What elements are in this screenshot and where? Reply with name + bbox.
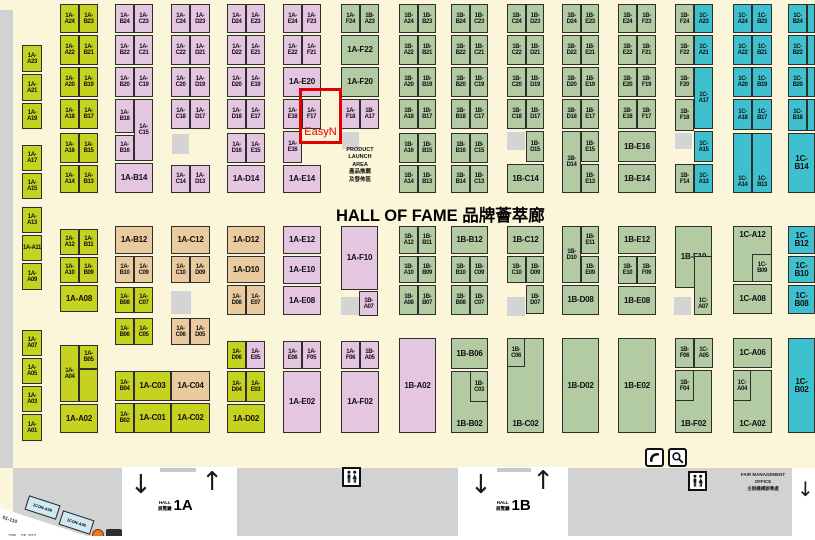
exhibition-floor-plan: 1A-A231A-A211A-A191A-A171A-A151A-A131A-A… xyxy=(0,0,815,540)
hall-1b-sublabel: HALL展覽廳 xyxy=(496,500,510,511)
hall-of-fame-title: HALL OF FAME 品牌薈萃廊 xyxy=(336,202,545,226)
booth-1B-F22[interactable]: 1B-F22 xyxy=(675,35,694,65)
booth-1B-D15[interactable]: 1B-D15 xyxy=(526,131,544,162)
booth-1C-B17[interactable]: 1C-B17 xyxy=(752,99,772,130)
booth-1C-B12[interactable]: 1C-B12 xyxy=(788,226,815,254)
booth-1B-B10[interactable]: 1B-B10 xyxy=(451,256,470,283)
booth-1B-E22[interactable]: 1B-E22 xyxy=(618,35,637,65)
booth-1B-E10[interactable]: 1B-E10 xyxy=(618,256,637,284)
booth-1B-C12[interactable]: 1B-C12 xyxy=(507,226,544,254)
booth-1B-D20[interactable]: 1B-D20 xyxy=(562,67,581,97)
booth-1A-C19[interactable]: 1A-C19 xyxy=(134,67,153,97)
booth-1A-C07[interactable]: 1A-C07 xyxy=(134,287,153,313)
booth-1A-D12[interactable]: 1A-D12 xyxy=(227,226,265,254)
booth-1C-B14[interactable]: 1C-B14 xyxy=(788,133,815,193)
pla-line: LAUNCH xyxy=(348,154,371,160)
booth-1B-A22[interactable]: 1B-A22 xyxy=(399,35,418,65)
booth-1A-A11[interactable]: 1A-A11 xyxy=(22,235,42,261)
magnifier-icon[interactable] xyxy=(668,448,687,467)
arrow-down-icon: ↓ xyxy=(470,472,492,498)
hall-1b-label: HALL展覽廳 1B xyxy=(496,497,531,514)
booth-1B-D23[interactable]: 1B-D23 xyxy=(526,4,544,33)
booth-filler[interactable] xyxy=(79,369,98,402)
booth-1A-B17[interactable]: 1A-B17 xyxy=(79,99,98,129)
booth-filler[interactable] xyxy=(807,35,815,65)
booth-1B-A12[interactable]: 1B-A12 xyxy=(399,226,418,254)
booth-1A-D14[interactable]: 1A-D14 xyxy=(227,165,265,193)
booth-1B-B08[interactable]: 1B-B08 xyxy=(451,285,470,315)
booth-1B-F19[interactable]: 1B-F19 xyxy=(637,67,656,97)
booth-1B-B14[interactable]: 1B-B14 xyxy=(451,165,470,193)
booth-1C-A18[interactable]: 1C-A18 xyxy=(733,99,752,130)
booth-1B-B07[interactable]: 1B-B07 xyxy=(418,285,436,315)
booth-1B-A08[interactable]: 1B-A08 xyxy=(399,285,418,315)
booth-1A-C23[interactable]: 1A-C23 xyxy=(134,4,153,33)
booth-1B-E02[interactable]: 1B-E02 xyxy=(618,338,656,433)
booth-1A-F22[interactable]: 1A-F22 xyxy=(341,35,379,65)
phone-icon[interactable] xyxy=(645,448,664,467)
booth-1B-C18[interactable]: 1B-C18 xyxy=(507,99,526,129)
booth-1B-C14[interactable]: 1B-C14 xyxy=(507,164,544,193)
booth-1A-C14[interactable]: 1A-C14 xyxy=(171,165,190,193)
booth-1A-B10[interactable]: 1A-B10 xyxy=(115,256,134,283)
booth-1A-B24[interactable]: 1A-B24 xyxy=(115,4,134,33)
booth-1B-E13[interactable]: 1B-E13 xyxy=(581,164,599,193)
booth-1A-A22[interactable]: 1A-A22 xyxy=(60,35,79,65)
booth-1B-D08[interactable]: 1B-D08 xyxy=(562,285,599,315)
booth-1A-B15[interactable]: 1A-B15 xyxy=(79,133,98,163)
booth-1A-B14[interactable]: 1A-B14 xyxy=(115,163,153,193)
booth-1A-F05[interactable]: 1A-F05 xyxy=(302,341,321,369)
hall-1a-label: HALL展覽廳 1A xyxy=(158,497,193,514)
booth-1A-D21[interactable]: 1A-D21 xyxy=(190,35,210,65)
booth-1A-F18[interactable]: 1A-F18 xyxy=(341,99,360,129)
booth-1A-A19[interactable]: 1A-A19 xyxy=(22,103,42,129)
booth-1B-C22[interactable]: 1B-C22 xyxy=(507,35,526,65)
booth-1C-B02[interactable]: 1C-B02 xyxy=(788,338,815,433)
booth-1B-F20[interactable]: 1B-F20 xyxy=(675,67,694,97)
booth-1A-C02[interactable]: 1A-C02 xyxy=(171,403,210,433)
booth-1B-B06[interactable]: 1B-B06 xyxy=(451,338,488,369)
easyn-label: EasyN xyxy=(302,126,339,138)
booth-1B-E14[interactable]: 1B-E14 xyxy=(618,164,656,193)
booth-1C-A15[interactable]: 1C-A15 xyxy=(694,131,713,162)
booth-1B-A02[interactable]: 1B-A02 xyxy=(399,338,436,433)
booth-1A-F24[interactable]: 1A-F24 xyxy=(341,4,360,33)
booth-1A-B12[interactable]: 1A-B12 xyxy=(115,226,153,254)
booth-1A-C10[interactable]: 1A-C10 xyxy=(171,256,190,283)
booth-1A-B16[interactable]: 1A-B16 xyxy=(115,135,134,161)
booth-1B-E18[interactable]: 1B-E18 xyxy=(618,99,637,129)
arrow-up-icon: ↑ xyxy=(532,468,554,494)
booth-1A-A18[interactable]: 1A-A18 xyxy=(60,99,79,129)
booth-1B-A16[interactable]: 1B-A16 xyxy=(399,133,418,163)
booth-1A-A09[interactable]: 1A-A09 xyxy=(22,263,42,290)
booth-1A-E17[interactable]: 1A-E17 xyxy=(246,99,265,129)
wall-left xyxy=(0,10,13,468)
booth-1B-C24[interactable]: 1B-C24 xyxy=(507,4,526,33)
booth-1A-E06[interactable]: 1A-E06 xyxy=(283,341,302,369)
booth-1A-E24[interactable]: 1A-E24 xyxy=(283,4,302,33)
entrance-hall-1a[interactable]: ↓ ↑ HALL展覽廳 1A xyxy=(122,467,237,536)
booth-1A-B05[interactable]: 1A-B05 xyxy=(79,345,98,369)
booth-1A-E08[interactable]: 1A-E08 xyxy=(283,286,321,315)
booth-1B-C09[interactable]: 1B-C09 xyxy=(470,256,488,283)
booth-1A-B20[interactable]: 1A-B20 xyxy=(115,67,134,97)
booth-1C-B21[interactable]: 1C-B21 xyxy=(752,35,772,65)
booth-1B-C21[interactable]: 1B-C21 xyxy=(470,35,488,65)
booth-1A-F21[interactable]: 1A-F21 xyxy=(302,35,321,65)
booth-1A-D09[interactable]: 1A-D09 xyxy=(190,256,210,283)
arrow-down-icon: ↓ xyxy=(797,477,814,501)
booth-1C-B24[interactable]: 1C-B24 xyxy=(788,4,807,33)
booth-1C-A13[interactable]: 1C-A13 xyxy=(694,164,713,193)
booth-1A-D10[interactable]: 1A-D10 xyxy=(227,256,265,283)
booth-1A-E23[interactable]: 1A-E23 xyxy=(246,4,265,33)
booth-1B-E12[interactable]: 1B-E12 xyxy=(618,226,656,254)
product-launch-area-label: PRODUCT LAUNCH AREA 產品推薦 及發佈區 xyxy=(340,147,380,184)
booth-1B-A05[interactable]: 1B-A05 xyxy=(360,341,379,369)
booth-1A-D18[interactable]: 1A-D18 xyxy=(227,99,246,129)
booth-1A-E10[interactable]: 1A-E10 xyxy=(283,256,321,284)
booth-1C-A08[interactable]: 1C-A08 xyxy=(733,284,772,314)
booth-1A-A05[interactable]: 1A-A05 xyxy=(22,358,42,384)
booth-1B-B17[interactable]: 1B-B17 xyxy=(418,99,436,129)
booth-1A-A08[interactable]: 1A-A08 xyxy=(60,285,98,312)
booth-1A-E05[interactable]: 1A-E05 xyxy=(246,341,265,369)
service-block xyxy=(341,297,359,315)
booth-1B-D17[interactable]: 1B-D17 xyxy=(526,99,544,129)
booth-1C-A14[interactable]: 1C-A14 xyxy=(733,133,752,193)
arrow-down-icon: ↓ xyxy=(130,472,152,498)
booth-1A-A04[interactable]: 1A-A04 xyxy=(60,345,79,402)
booth-1A-F10[interactable]: 1A-F10 xyxy=(341,226,378,290)
booth-1C-A24[interactable]: 1C-A24 xyxy=(733,4,752,33)
booth-1A-A23[interactable]: 1A-A23 xyxy=(22,45,42,72)
fair-management-office-label: FAIR MANAGEMENT OFFICE 主辦機構辦事處 xyxy=(731,472,795,492)
booth-1C-B08[interactable]: 1C-B08 xyxy=(788,285,815,314)
service-block xyxy=(171,291,191,314)
booth-1C-A20[interactable]: 1C-A20 xyxy=(733,67,752,97)
booth-1A-C06[interactable]: 1A-C06 xyxy=(171,318,190,345)
booth-1B-B20[interactable]: 1B-B20 xyxy=(451,67,470,97)
booth-1A-C12[interactable]: 1A-C12 xyxy=(171,226,210,254)
booth-1B-D14[interactable]: 1B-D14 xyxy=(562,131,581,193)
booth-1A-A13[interactable]: 1A-A13 xyxy=(22,207,42,233)
service-block xyxy=(674,297,691,315)
booth-1A-B19[interactable]: 1A-B19 xyxy=(79,67,98,97)
booth-1B-D18[interactable]: 1B-D18 xyxy=(562,99,581,129)
booth-1C-B23[interactable]: 1C-B23 xyxy=(752,4,772,33)
booth-1B-C23[interactable]: 1B-C23 xyxy=(470,4,488,33)
booth-1B-C13[interactable]: 1B-C13 xyxy=(470,165,488,193)
hall-1b-number: 1B xyxy=(512,497,531,514)
booth-1B-B22[interactable]: 1B-B22 xyxy=(451,35,470,65)
booth-1C-A06[interactable]: 1C-A06 xyxy=(733,338,772,368)
booth-1B-A23[interactable]: 1B-A23 xyxy=(360,4,379,33)
booth-1C-B19[interactable]: 1C-B19 xyxy=(752,67,772,97)
booth-1C-A04[interactable]: 1C-A04 xyxy=(733,370,751,401)
booth-1B-B19[interactable]: 1B-B19 xyxy=(418,67,436,97)
bottom-margin xyxy=(0,536,815,540)
booth-1B-F14[interactable]: 1B-F14 xyxy=(675,164,694,193)
booth-1B-E23[interactable]: 1B-E23 xyxy=(581,4,599,33)
booth-1A-C21[interactable]: 1A-C21 xyxy=(134,35,153,65)
booth-1A-A16[interactable]: 1A-A16 xyxy=(60,133,79,163)
booth-1A-B11[interactable]: 1A-B11 xyxy=(79,229,98,255)
booth-1C-B18[interactable]: 1C-B18 xyxy=(788,99,807,131)
booth-1A-E19[interactable]: 1A-E19 xyxy=(246,67,265,97)
booth-1B-A14[interactable]: 1B-A14 xyxy=(399,165,418,193)
booth-1B-F21[interactable]: 1B-F21 xyxy=(637,35,656,65)
booth-1A-A21[interactable]: 1A-A21 xyxy=(22,74,42,101)
booth-1A-D20[interactable]: 1A-D20 xyxy=(227,67,246,97)
booth-1B-A17[interactable]: 1B-A17 xyxy=(360,99,379,129)
service-block xyxy=(675,133,692,149)
booth-1C-B09[interactable]: 1C-B09 xyxy=(752,254,772,282)
booth-1B-C03[interactable]: 1B-C03 xyxy=(470,371,488,402)
booth-1C-B20[interactable]: 1C-B20 xyxy=(788,67,807,97)
booth-filler[interactable] xyxy=(807,99,815,131)
booth-filler[interactable] xyxy=(807,4,815,33)
booth-1A-C18[interactable]: 1A-C18 xyxy=(171,99,190,129)
booth-1A-D13[interactable]: 1A-D13 xyxy=(190,165,210,193)
booth-1A-C15[interactable]: 1A-C15 xyxy=(134,99,153,161)
booth-1A-F02[interactable]: 1A-F02 xyxy=(341,371,379,433)
booth-1B-E08[interactable]: 1B-E08 xyxy=(618,286,656,315)
booth-1B-E11[interactable]: 1B-E11 xyxy=(581,226,599,254)
booth-1B-F09[interactable]: 1B-F09 xyxy=(637,256,656,284)
booth-1A-D22[interactable]: 1A-D22 xyxy=(227,35,246,65)
booth-1A-E22[interactable]: 1A-E22 xyxy=(283,35,302,65)
booth-1B-D09[interactable]: 1B-D09 xyxy=(526,256,544,283)
booth-1B-F23[interactable]: 1B-F23 xyxy=(637,4,656,33)
arrow-up-icon: ↑ xyxy=(201,469,223,495)
booth-1B-A10[interactable]: 1B-A10 xyxy=(399,256,418,283)
booth-filler[interactable] xyxy=(807,67,815,97)
booth-1A-A17[interactable]: 1A-A17 xyxy=(22,145,42,171)
hall-1a-number: 1A xyxy=(174,497,193,514)
pla-line: AREA xyxy=(352,162,368,168)
booth-1B-B16[interactable]: 1B-B16 xyxy=(451,133,470,163)
hall-1a-sublabel: HALL展覽廳 xyxy=(158,500,172,511)
booth-1B-F24[interactable]: 1B-F24 xyxy=(675,4,694,33)
booth-1A-A07[interactable]: 1A-A07 xyxy=(22,330,42,356)
booth-1B-C10[interactable]: 1B-C10 xyxy=(507,256,526,283)
booth-1B-D21[interactable]: 1B-D21 xyxy=(526,35,544,65)
booth-1B-E20[interactable]: 1B-E20 xyxy=(618,67,637,97)
booth-1C-B10[interactable]: 1C-B10 xyxy=(788,256,815,283)
booth-1B-B12[interactable]: 1B-B12 xyxy=(451,226,488,254)
entrance-tick xyxy=(160,468,196,472)
booth-1B-F18[interactable]: 1B-F18 xyxy=(675,99,694,131)
booth-1A-B22[interactable]: 1A-B22 xyxy=(115,35,134,65)
booth-1A-B06[interactable]: 1A-B06 xyxy=(115,318,134,345)
service-block xyxy=(507,132,525,150)
booth-1B-F17[interactable]: 1B-F17 xyxy=(637,99,656,129)
booth-1A-A12[interactable]: 1A-A12 xyxy=(60,229,79,255)
pla-line: 產品推薦 xyxy=(349,169,371,175)
booth-1A-E12[interactable]: 1A-E12 xyxy=(283,226,321,254)
booth-1B-B09[interactable]: 1B-B09 xyxy=(418,256,436,283)
booth-1B-D07[interactable]: 1B-D07 xyxy=(526,285,544,314)
highlighted-booth-easyn[interactable]: EasyN xyxy=(299,88,342,144)
booth-1A-E14[interactable]: 1A-E14 xyxy=(283,165,321,193)
booth-1B-E09[interactable]: 1B-E09 xyxy=(581,256,599,283)
booth-1A-A01[interactable]: 1A-A01 xyxy=(22,414,42,441)
booth-1A-B09[interactable]: 1A-B09 xyxy=(79,257,98,283)
booth-1B-E16[interactable]: 1B-E16 xyxy=(618,131,656,162)
booth-1A-A20[interactable]: 1A-A20 xyxy=(60,67,79,97)
booth-1B-D02[interactable]: 1B-D02 xyxy=(562,338,599,433)
booth-1A-C03[interactable]: 1A-C03 xyxy=(134,371,171,401)
booth-1A-E15[interactable]: 1A-E15 xyxy=(246,133,265,163)
booth-1A-A02[interactable]: 1A-A02 xyxy=(60,404,98,433)
booth-1C-A17[interactable]: 1C-A17 xyxy=(694,67,713,129)
booth-1A-F20[interactable]: 1A-F20 xyxy=(341,67,379,97)
booth-1A-B13[interactable]: 1A-B13 xyxy=(79,165,98,193)
booth-1B-C17[interactable]: 1B-C17 xyxy=(470,99,488,129)
booth-1A-E02[interactable]: 1A-E02 xyxy=(283,371,321,433)
booth-1B-E21[interactable]: 1B-E21 xyxy=(581,35,599,65)
booth-1A-A24[interactable]: 1A-A24 xyxy=(60,4,79,33)
booth-1B-C15[interactable]: 1B-C15 xyxy=(470,133,488,163)
service-block xyxy=(507,297,525,316)
entrance-tick xyxy=(497,468,531,472)
booth-1A-A10[interactable]: 1A-A10 xyxy=(60,257,79,283)
booth-1A-D23[interactable]: 1A-D23 xyxy=(190,4,210,33)
booth-1B-A07[interactable]: 1B-A07 xyxy=(359,291,378,316)
booth-1A-A15[interactable]: 1A-A15 xyxy=(22,173,42,199)
booth-1B-C07[interactable]: 1B-C07 xyxy=(470,285,488,315)
booth-1A-E03[interactable]: 1A-E03 xyxy=(246,371,265,402)
booth-1C-A22[interactable]: 1C-A22 xyxy=(733,35,752,65)
booth-1B-C19[interactable]: 1B-C19 xyxy=(470,67,488,97)
booth-1B-B23[interactable]: 1B-B23 xyxy=(418,4,436,33)
booth-1B-D19[interactable]: 1B-D19 xyxy=(526,67,544,97)
booth-1B-F04[interactable]: 1B-F04 xyxy=(675,370,694,401)
booth-1A-C24[interactable]: 1A-C24 xyxy=(171,4,190,33)
booth-1B-E24[interactable]: 1B-E24 xyxy=(618,4,637,33)
booth-1C-A05[interactable]: 1C-A05 xyxy=(694,338,713,368)
booth-1B-B18[interactable]: 1B-B18 xyxy=(451,99,470,129)
booth-1A-C01[interactable]: 1A-C01 xyxy=(134,403,171,433)
booth-1B-C06[interactable]: 1B-C06 xyxy=(507,338,525,367)
booth-1A-C05[interactable]: 1A-C05 xyxy=(134,318,153,345)
booth-1A-C04[interactable]: 1A-C04 xyxy=(171,371,210,401)
booth-1C-A07[interactable]: 1C-A07 xyxy=(694,256,712,315)
booth-1A-A14[interactable]: 1A-A14 xyxy=(60,165,79,193)
booth-1A-B08[interactable]: 1A-B08 xyxy=(115,287,134,313)
restroom-icon xyxy=(688,471,707,491)
pla-line: 及發佈區 xyxy=(349,177,371,183)
booth-1B-B15[interactable]: 1B-B15 xyxy=(418,133,436,163)
booth-1B-B24[interactable]: 1B-B24 xyxy=(451,4,470,33)
booth-1A-B18[interactable]: 1A-B18 xyxy=(115,99,134,133)
booth-1A-D05[interactable]: 1A-D05 xyxy=(190,318,210,345)
booth-1B-D10[interactable]: 1B-D10 xyxy=(562,226,581,283)
booth-1A-F23[interactable]: 1A-F23 xyxy=(302,4,321,33)
booth-1B-C20[interactable]: 1B-C20 xyxy=(507,67,526,97)
booth-1B-A20[interactable]: 1B-A20 xyxy=(399,67,418,97)
booth-1A-D16[interactable]: 1A-D16 xyxy=(227,133,246,163)
restroom-icon xyxy=(342,467,361,487)
booth-1B-B21[interactable]: 1B-B21 xyxy=(418,35,436,65)
booth-1A-D04[interactable]: 1A-D04 xyxy=(227,371,246,402)
service-block xyxy=(172,134,189,154)
booth-1B-D24[interactable]: 1B-D24 xyxy=(562,4,581,33)
booth-1B-F06[interactable]: 1B-F06 xyxy=(675,338,694,368)
booth-1A-F06[interactable]: 1A-F06 xyxy=(341,341,360,369)
booth-1A-C09[interactable]: 1A-C09 xyxy=(134,256,153,283)
booth-1A-D19[interactable]: 1A-D19 xyxy=(190,67,210,97)
booth-1A-B21[interactable]: 1A-B21 xyxy=(79,35,98,65)
booth-1B-B13[interactable]: 1B-B13 xyxy=(418,165,436,193)
booth-1A-E21[interactable]: 1A-E21 xyxy=(246,35,265,65)
booth-1A-D02[interactable]: 1A-D02 xyxy=(227,404,265,433)
booth-1B-E19[interactable]: 1B-E19 xyxy=(581,67,599,97)
booth-1C-B22[interactable]: 1C-B22 xyxy=(788,35,807,65)
pla-line: PRODUCT xyxy=(346,147,373,153)
booth-1B-E17[interactable]: 1B-E17 xyxy=(581,99,599,129)
booth-1A-C22[interactable]: 1A-C22 xyxy=(171,35,190,65)
booth-1A-D17[interactable]: 1A-D17 xyxy=(190,99,210,129)
booth-1B-A18[interactable]: 1B-A18 xyxy=(399,99,418,129)
booth-1B-A24[interactable]: 1B-A24 xyxy=(399,4,418,33)
booth-1A-D24[interactable]: 1A-D24 xyxy=(227,4,246,33)
booth-1C-A23[interactable]: 1C-A23 xyxy=(694,4,713,33)
booth-1A-E07[interactable]: 1A-E07 xyxy=(246,285,265,315)
booth-1A-B04[interactable]: 1A-B04 xyxy=(115,371,134,401)
booth-1A-B23[interactable]: 1A-B23 xyxy=(79,4,98,33)
booth-1A-A03[interactable]: 1A-A03 xyxy=(22,386,42,412)
booth-1C-A21[interactable]: 1C-A21 xyxy=(694,35,713,65)
booth-1A-C20[interactable]: 1A-C20 xyxy=(171,67,190,97)
booth-1B-E15[interactable]: 1B-E15 xyxy=(581,131,599,162)
booth-1B-D22[interactable]: 1B-D22 xyxy=(562,35,581,65)
booth-1C-B13[interactable]: 1C-B13 xyxy=(752,133,772,193)
booth-1A-D06[interactable]: 1A-D06 xyxy=(227,341,246,369)
booth-1A-B02[interactable]: 1A-B02 xyxy=(115,403,134,433)
entrance-hall-1b[interactable]: ↓ ↑ HALL展覽廳 1B xyxy=(458,467,568,536)
booth-1B-B11[interactable]: 1B-B11 xyxy=(418,226,436,254)
booth-1A-D08[interactable]: 1A-D08 xyxy=(227,285,246,315)
